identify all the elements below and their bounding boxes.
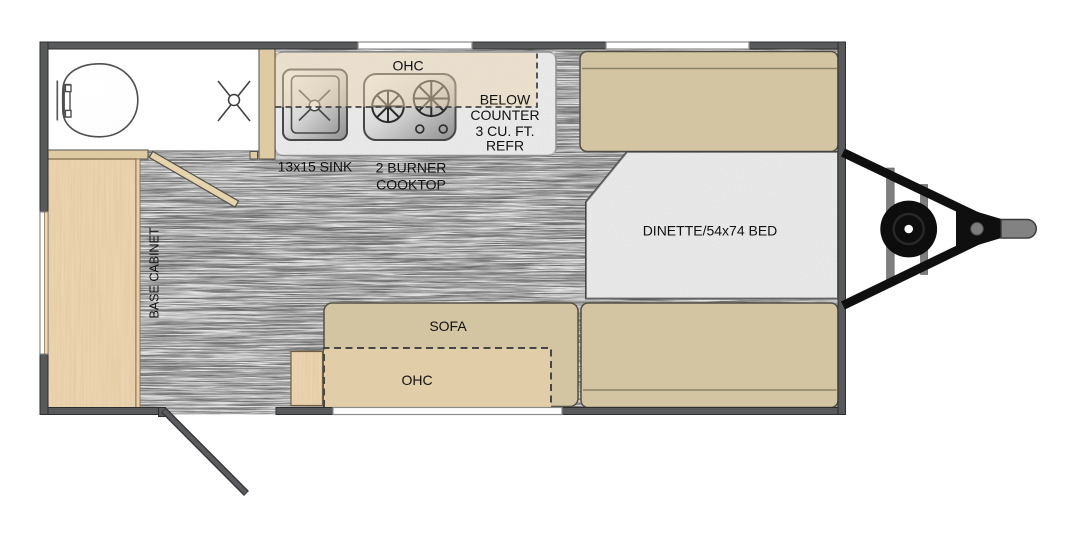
svg-text:DINETTE/54x74 BED: DINETTE/54x74 BED bbox=[643, 223, 778, 239]
svg-text:BELOW: BELOW bbox=[480, 92, 531, 108]
svg-text:13x15 SINK: 13x15 SINK bbox=[278, 159, 353, 175]
svg-text:COOKTOP: COOKTOP bbox=[376, 177, 446, 193]
svg-text:OHC: OHC bbox=[392, 58, 423, 74]
svg-text:COUNTER: COUNTER bbox=[470, 107, 539, 123]
svg-text:OHC: OHC bbox=[401, 372, 432, 388]
svg-text:REFR: REFR bbox=[486, 138, 524, 154]
svg-text:2 BURNER: 2 BURNER bbox=[376, 160, 447, 176]
svg-text:SOFA: SOFA bbox=[429, 318, 467, 334]
svg-text:BASE CABINET: BASE CABINET bbox=[148, 227, 162, 318]
